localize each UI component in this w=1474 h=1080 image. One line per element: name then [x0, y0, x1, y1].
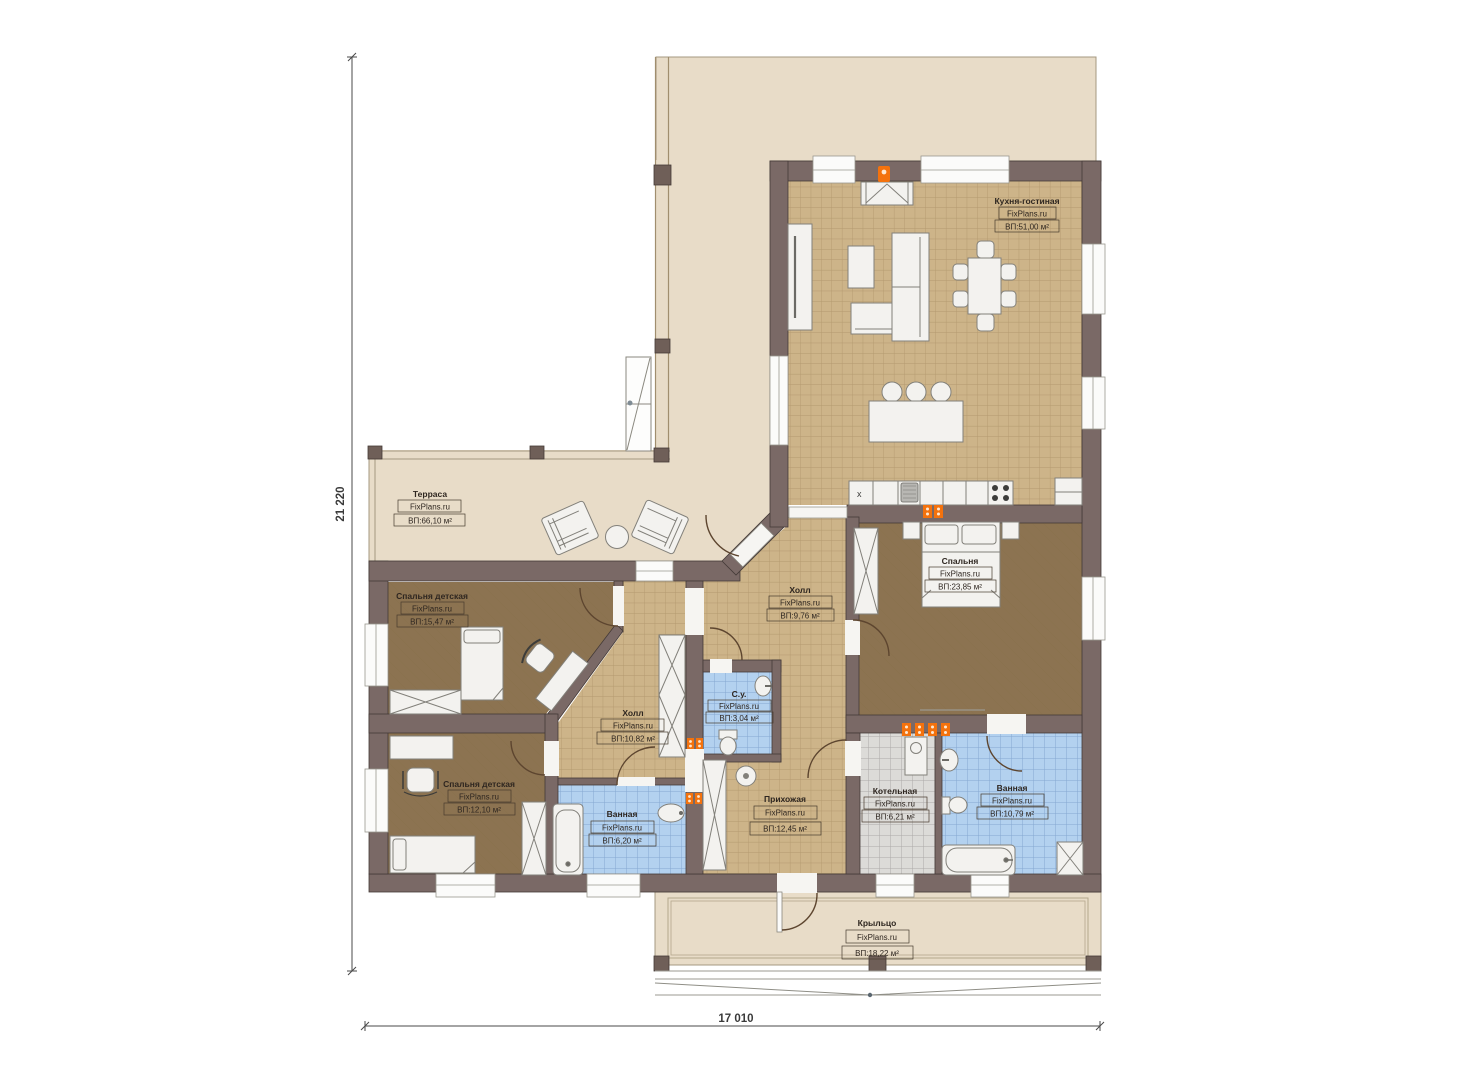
svg-text:ВП:6,20 м²: ВП:6,20 м²: [602, 837, 642, 846]
svg-text:ВП:10,82 м²: ВП:10,82 м²: [611, 735, 655, 744]
svg-text:FixPlans.ru: FixPlans.ru: [602, 824, 642, 833]
svg-text:FixPlans.ru: FixPlans.ru: [459, 793, 499, 802]
svg-text:FixPlans.ru: FixPlans.ru: [410, 503, 450, 512]
svg-text:Крыльцо: Крыльцо: [858, 918, 897, 928]
svg-text:Ванная: Ванная: [607, 809, 638, 819]
svg-text:Прихожая: Прихожая: [764, 794, 806, 804]
svg-text:ВП:18,22 м²: ВП:18,22 м²: [855, 949, 899, 958]
svg-text:FixPlans.ru: FixPlans.ru: [857, 933, 897, 942]
svg-text:Ванная: Ванная: [997, 783, 1028, 793]
svg-text:Спальня детская: Спальня детская: [443, 779, 515, 789]
svg-text:17 010: 17 010: [718, 1013, 753, 1025]
svg-text:Спальня: Спальня: [942, 556, 979, 566]
svg-text:Холл: Холл: [622, 708, 643, 718]
svg-text:ВП:10,79 м²: ВП:10,79 м²: [990, 810, 1034, 819]
svg-text:ВП:3,04 м²: ВП:3,04 м²: [719, 714, 759, 723]
svg-text:ВП:51,00 м²: ВП:51,00 м²: [1005, 223, 1049, 232]
svg-text:x: x: [857, 489, 862, 499]
svg-text:ВП:9,76 м²: ВП:9,76 м²: [780, 612, 820, 621]
svg-text:ВП:6,21 м²: ВП:6,21 м²: [875, 813, 915, 822]
svg-text:21 220: 21 220: [335, 486, 347, 521]
svg-text:С.у.: С.у.: [732, 689, 747, 699]
svg-text:FixPlans.ru: FixPlans.ru: [412, 605, 452, 614]
svg-text:FixPlans.ru: FixPlans.ru: [765, 809, 805, 818]
svg-text:FixPlans.ru: FixPlans.ru: [875, 800, 915, 809]
svg-text:FixPlans.ru: FixPlans.ru: [613, 722, 653, 731]
svg-text:FixPlans.ru: FixPlans.ru: [780, 599, 820, 608]
svg-text:ВП:66,10 м²: ВП:66,10 м²: [408, 517, 452, 526]
svg-text:FixPlans.ru: FixPlans.ru: [992, 797, 1032, 806]
svg-text:FixPlans.ru: FixPlans.ru: [719, 702, 759, 711]
svg-text:ВП:23,85 м²: ВП:23,85 м²: [938, 583, 982, 592]
svg-text:ВП:15,47 м²: ВП:15,47 м²: [410, 618, 454, 627]
svg-text:FixPlans.ru: FixPlans.ru: [1007, 210, 1047, 219]
svg-text:FixPlans.ru: FixPlans.ru: [940, 570, 980, 579]
svg-text:ВП:12,45 м²: ВП:12,45 м²: [763, 825, 807, 834]
svg-text:Спальня детская: Спальня детская: [396, 591, 468, 601]
svg-text:Кухня-гостиная: Кухня-гостиная: [994, 196, 1059, 206]
svg-text:ВП:12,10 м²: ВП:12,10 м²: [457, 806, 501, 815]
svg-text:Холл: Холл: [789, 585, 810, 595]
svg-text:Котельная: Котельная: [873, 786, 918, 796]
svg-text:Терраса: Терраса: [413, 489, 447, 499]
